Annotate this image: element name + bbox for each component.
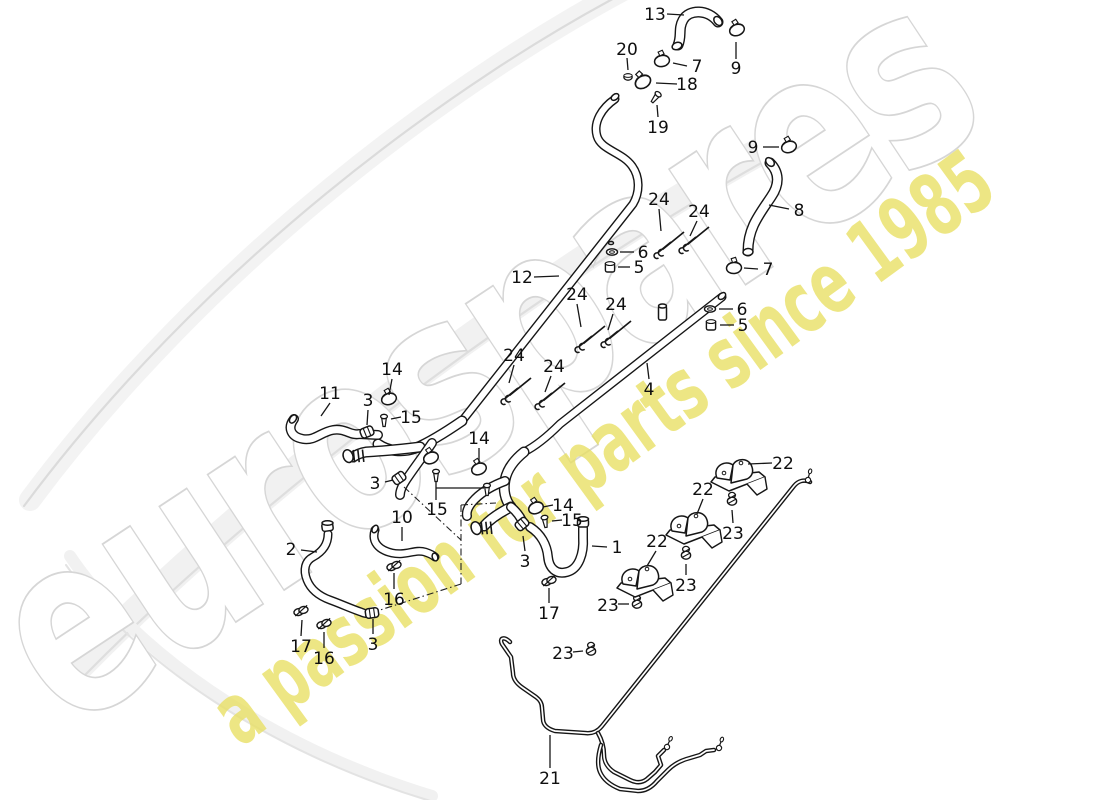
callout-10: 10 (391, 508, 413, 528)
callout-3: 3 (370, 474, 381, 494)
callout-23: 23 (675, 576, 697, 596)
parts-diagram-canvas: eurospares a passion for parts since 198… (0, 0, 1100, 800)
callout-5: 5 (634, 258, 645, 278)
callout-11: 11 (319, 384, 341, 404)
callout-18: 18 (676, 75, 698, 95)
leader-line (732, 510, 733, 523)
part-23-clip (681, 546, 690, 559)
callout-16: 16 (313, 649, 335, 669)
callout-3: 3 (368, 635, 379, 655)
callout-15: 15 (400, 408, 422, 428)
callout-5: 5 (738, 316, 749, 336)
callout-23: 23 (597, 596, 619, 616)
callout-15: 15 (426, 500, 448, 520)
part-22-bracket (711, 460, 767, 495)
leader-line (697, 499, 703, 514)
callout-24: 24 (566, 285, 588, 305)
callout-17: 17 (538, 604, 560, 624)
callout-17: 17 (290, 637, 312, 657)
part-5-cap (706, 320, 715, 330)
callout-22: 22 (772, 454, 794, 474)
leader-line (592, 546, 607, 547)
callout-24: 24 (503, 346, 525, 366)
part-6-ring (705, 306, 716, 312)
callout-24: 24 (543, 357, 565, 377)
callout-19: 19 (647, 118, 669, 138)
leader-line (647, 551, 656, 566)
part-23-clip (632, 595, 641, 608)
callout-24: 24 (605, 295, 627, 315)
callout-3: 3 (363, 391, 374, 411)
callout-1: 1 (612, 538, 623, 558)
callout-24: 24 (688, 202, 710, 222)
part-6-ring (607, 249, 618, 255)
callout-23: 23 (722, 524, 744, 544)
parts-diagram-page: eurospares a passion for parts since 198… (0, 0, 1100, 800)
part-5-cap (605, 262, 614, 272)
leader-line (748, 463, 772, 464)
part-17-clip (541, 575, 557, 586)
callout-15: 15 (561, 511, 583, 531)
part-23-clip (727, 492, 736, 505)
callout-22: 22 (646, 532, 668, 552)
callout-9: 9 (748, 138, 759, 158)
callout-23: 23 (552, 644, 574, 664)
callout-14: 14 (468, 429, 490, 449)
callout-13: 13 (644, 5, 666, 25)
part-23-clip (586, 642, 595, 655)
leader-line (573, 651, 583, 652)
callout-16: 16 (383, 590, 405, 610)
part-3-connector (365, 607, 379, 618)
part-22-bracket (617, 566, 673, 601)
callout-21: 21 (539, 769, 561, 789)
callout-7: 7 (692, 57, 703, 77)
part-21-pipe-tail-a (598, 733, 664, 782)
callout-24: 24 (648, 190, 670, 210)
callout-2: 2 (286, 540, 297, 560)
part-22-bracket (666, 513, 722, 548)
callout-9: 9 (731, 59, 742, 79)
callout-12: 12 (511, 268, 533, 288)
callout-7: 7 (763, 260, 774, 280)
callout-8: 8 (794, 201, 805, 221)
callout-20: 20 (616, 40, 638, 60)
callout-14: 14 (381, 360, 403, 380)
callout-4: 4 (644, 380, 655, 400)
callout-22: 22 (692, 480, 714, 500)
callout-3: 3 (520, 552, 531, 572)
part-20-nut (624, 74, 632, 80)
